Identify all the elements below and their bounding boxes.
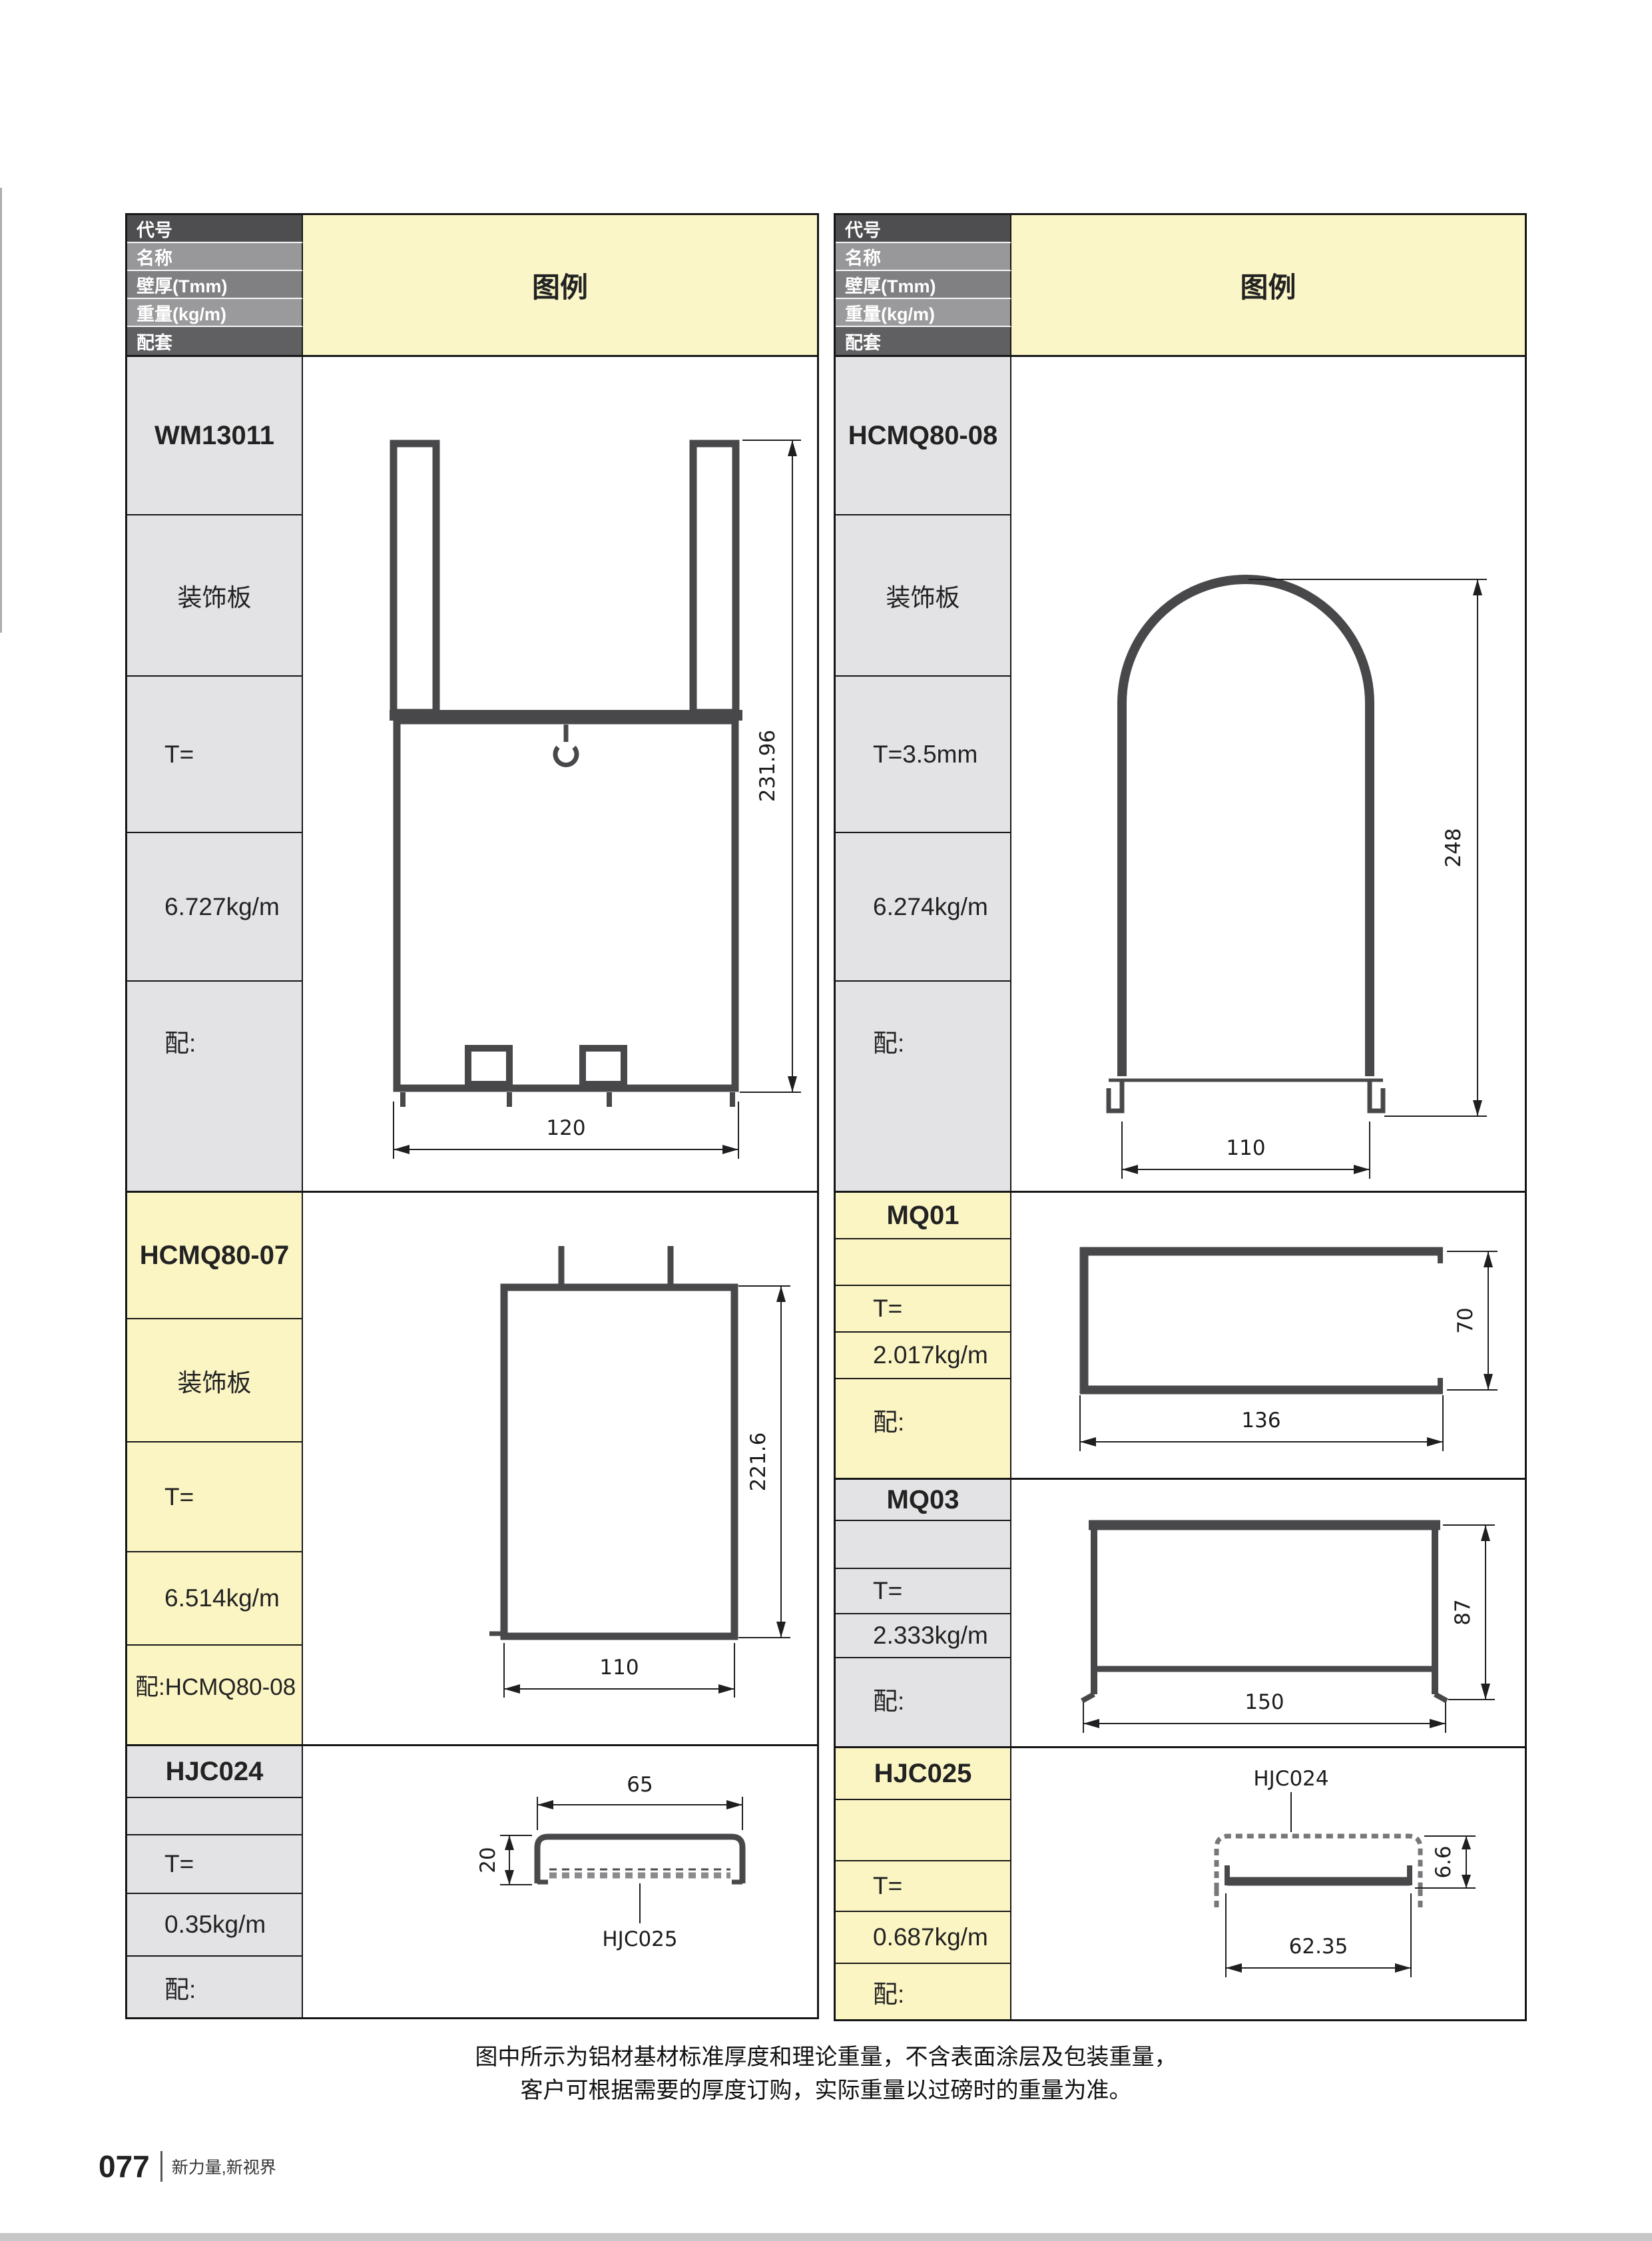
profile-drawing-hjc025: HJC024 6.6 — [1011, 1748, 1525, 2019]
code-cell: WM13011 — [127, 357, 303, 515]
dimension-label: 136 — [1241, 1409, 1280, 1433]
right-table-header: 代号 名称 壁厚(Tmm) 重量(kg/m) 配套 图例 — [836, 215, 1525, 357]
page-number: 077 — [99, 2148, 150, 2184]
name-cell: 装饰板 — [127, 1319, 303, 1442]
profile-drawing-mq01: 70 136 — [1011, 1193, 1525, 1478]
footer-note-line1: 图中所示为铝材基材标准厚度和理论重量，不含表面涂层及包装重量， — [0, 2041, 1652, 2074]
code-cell: HJC025 — [836, 1748, 1011, 1800]
dimension-label: 70 — [1454, 1307, 1478, 1333]
dimension-label: 6.6 — [1432, 1845, 1456, 1878]
footer-note-line2: 客户可根据需要的厚度订购，实际重量以过磅时的重量为准。 — [0, 2074, 1652, 2107]
left-table-header: 代号 名称 壁厚(Tmm) 重量(kg/m) 配套 图例 — [127, 215, 817, 357]
dimension-label: 87 — [1451, 1599, 1475, 1625]
match-cell: 配: — [836, 982, 1011, 1191]
dimension-label: 110 — [1226, 1136, 1265, 1160]
name-cell: 装饰板 — [127, 515, 303, 677]
profile-drawing-mq03: 87 150 — [1011, 1480, 1525, 1746]
code-cell: HJC024 — [127, 1746, 303, 1798]
match-cell: 配: — [836, 1379, 1011, 1478]
match-cell: 配: — [127, 1957, 303, 2017]
dimension-label: 20 — [476, 1847, 500, 1873]
section-hcmq80-08: HCMQ80-08 装饰板 T=3.5mm 6.274kg/m 配: 248 — [836, 357, 1525, 1191]
dimension-label: 65 — [627, 1773, 653, 1797]
figure-cell-wm13011: 231.96 120 — [303, 357, 817, 1191]
match-cell: 配: — [127, 982, 303, 1191]
header-weight-label: 重量(kg/m) — [127, 299, 303, 327]
catalog-page: 代号 名称 壁厚(Tmm) 重量(kg/m) 配套 图例 WM13011 装饰板… — [0, 0, 1652, 2241]
figure-cell-hjc025: HJC024 6.6 — [1011, 1748, 1525, 2019]
header-name-label: 名称 — [127, 243, 303, 271]
code-cell: MQ03 — [836, 1480, 1011, 1521]
header-thickness-label: 壁厚(Tmm) — [127, 271, 303, 299]
header-match-label: 配套 — [836, 327, 1011, 355]
section-hjc025: HJC025 T= 0.687kg/m 配: HJC024 — [836, 1746, 1525, 2019]
thickness-cell: T= — [127, 1442, 303, 1552]
profile-drawing-hcmq80-07: 221.6 110 — [303, 1193, 817, 1744]
dimension-label: 231.96 — [756, 730, 780, 802]
thickness-cell: T= — [836, 1569, 1011, 1614]
figure-cell-hjc024: 65 20 HJC025 — [303, 1746, 817, 2017]
figure-cell-mq03: 87 150 — [1011, 1480, 1525, 1746]
section-mq03: MQ03 T= 2.333kg/m 配: — [836, 1478, 1525, 1746]
figure-callout-label: HJC024 — [1253, 1767, 1328, 1791]
weight-cell: 0.687kg/m — [836, 1912, 1011, 1964]
match-cell: 配: — [836, 1964, 1011, 2019]
name-cell — [836, 1239, 1011, 1286]
left-profile-table: 代号 名称 壁厚(Tmm) 重量(kg/m) 配套 图例 WM13011 装饰板… — [125, 213, 819, 2019]
weight-cell: 6.514kg/m — [127, 1552, 303, 1646]
dimension-label: 221.6 — [746, 1433, 770, 1492]
code-cell: MQ01 — [836, 1193, 1011, 1239]
profile-drawing-hjc024: 65 20 HJC025 — [303, 1746, 817, 2017]
code-cell: HCMQ80-07 — [127, 1193, 303, 1319]
profile-drawing-wm13011: 231.96 120 — [303, 357, 817, 1191]
thickness-cell: T= — [127, 1835, 303, 1894]
right-profile-table: 代号 名称 壁厚(Tmm) 重量(kg/m) 配套 图例 HCMQ80-08 装… — [834, 213, 1527, 2021]
header-code-label: 代号 — [127, 215, 303, 243]
thickness-cell: T= — [836, 1861, 1011, 1912]
section-mq01: MQ01 T= 2.017kg/m 配: 70 — [836, 1191, 1525, 1478]
match-cell: 配:HCMQ80-08 — [127, 1646, 303, 1744]
weight-cell: 6.727kg/m — [127, 833, 303, 982]
dimension-label: 62.35 — [1289, 1935, 1348, 1959]
section-hjc024: HJC024 T= 0.35kg/m 配: 65 — [127, 1744, 817, 2017]
figure-callout-label: HJC025 — [602, 1927, 677, 1951]
header-weight-label: 重量(kg/m) — [836, 299, 1011, 327]
weight-cell: 2.333kg/m — [836, 1614, 1011, 1658]
profile-drawing-hcmq80-08: 248 110 — [1011, 357, 1525, 1191]
legend-title: 图例 — [303, 215, 817, 355]
header-name-label: 名称 — [836, 243, 1011, 271]
page-footer: 077 新力量,新视界 — [99, 2148, 276, 2184]
page-edge-mark — [0, 188, 2, 633]
section-hcmq80-07: HCMQ80-07 装饰板 T= 6.514kg/m 配:HCMQ80-08 2 — [127, 1191, 817, 1744]
brand-slogan: 新力量,新视界 — [172, 2154, 276, 2178]
header-match-label: 配套 — [127, 327, 303, 355]
section-wm13011: WM13011 装饰板 T= 6.727kg/m 配: — [127, 357, 817, 1191]
dimension-label: 150 — [1244, 1690, 1284, 1714]
thickness-cell: T= — [127, 677, 303, 833]
footer-divider — [160, 2151, 162, 2182]
name-cell: 装饰板 — [836, 515, 1011, 677]
weight-cell: 0.35kg/m — [127, 1894, 303, 1957]
header-code-label: 代号 — [836, 215, 1011, 243]
name-cell — [127, 1798, 303, 1835]
weight-cell: 2.017kg/m — [836, 1333, 1011, 1379]
dimension-label: 248 — [1442, 828, 1466, 867]
name-cell — [836, 1800, 1011, 1861]
bottom-page-bar — [0, 2233, 1652, 2241]
footer-note: 图中所示为铝材基材标准厚度和理论重量，不含表面涂层及包装重量， 客户可根据需要的… — [0, 2041, 1652, 2107]
figure-cell-hcmq80-08: 248 110 — [1011, 357, 1525, 1191]
header-thickness-label: 壁厚(Tmm) — [836, 271, 1011, 299]
dimension-label: 120 — [546, 1116, 585, 1140]
thickness-cell: T=3.5mm — [836, 677, 1011, 833]
match-cell: 配: — [836, 1658, 1011, 1746]
figure-cell-mq01: 70 136 — [1011, 1193, 1525, 1478]
weight-cell: 6.274kg/m — [836, 833, 1011, 982]
legend-title: 图例 — [1011, 215, 1525, 355]
thickness-cell: T= — [836, 1286, 1011, 1333]
figure-cell-hcmq80-07: 221.6 110 — [303, 1193, 817, 1744]
code-cell: HCMQ80-08 — [836, 357, 1011, 515]
name-cell — [836, 1521, 1011, 1569]
dimension-label: 110 — [599, 1656, 639, 1680]
